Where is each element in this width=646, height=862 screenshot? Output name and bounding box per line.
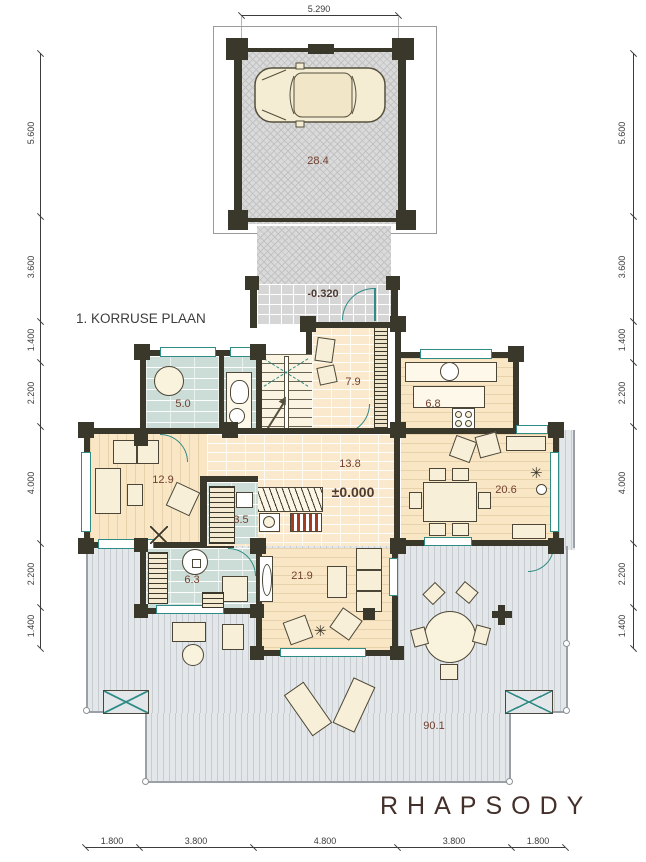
dim-label-bottom: 4.800 xyxy=(295,836,355,846)
sideboard xyxy=(506,436,546,451)
log-post xyxy=(392,38,414,60)
log-post xyxy=(245,276,259,290)
log-post xyxy=(134,344,150,360)
log-post xyxy=(390,538,406,554)
railing-post xyxy=(142,778,149,785)
window xyxy=(230,347,252,357)
log-post xyxy=(134,604,148,618)
terrace-railing xyxy=(573,430,575,548)
window xyxy=(420,349,492,359)
dim-label-left: 3.600 xyxy=(26,248,36,286)
log-post xyxy=(222,422,238,438)
plant-icon: ✳ xyxy=(530,466,543,481)
log-post xyxy=(508,346,524,362)
railing-post xyxy=(563,640,570,647)
washroom-table xyxy=(222,576,248,602)
railing-post xyxy=(506,778,513,785)
floor-x-mark xyxy=(150,526,168,544)
terrace-round-table xyxy=(424,611,476,663)
log-post xyxy=(226,38,248,60)
wall-segment xyxy=(234,44,242,230)
log-post xyxy=(78,538,94,554)
coffee-table xyxy=(327,566,347,598)
stove-burner xyxy=(465,420,472,427)
log-post xyxy=(134,432,148,446)
terrace-railing xyxy=(86,546,88,712)
dining-chair xyxy=(409,492,422,509)
dim-line-right xyxy=(633,53,634,648)
washroom-bench xyxy=(148,552,168,604)
terrace-bench xyxy=(222,624,244,650)
terrace-post-cross xyxy=(498,605,505,625)
window xyxy=(81,452,91,532)
log-post xyxy=(386,276,400,290)
log-post xyxy=(250,604,264,618)
window xyxy=(389,558,398,596)
wall-segment xyxy=(398,44,406,230)
room-area-kitchen: 6.8 xyxy=(418,398,448,410)
dining-table xyxy=(423,482,477,522)
log-post xyxy=(250,538,266,554)
boiler xyxy=(154,366,184,396)
wall-segment xyxy=(513,352,519,432)
terrace-railing xyxy=(145,781,511,783)
dim-label-left: 5.600 xyxy=(26,114,36,152)
railing-post xyxy=(563,707,570,714)
dining-chair xyxy=(429,468,446,481)
room-area-left: 12.9 xyxy=(146,474,180,486)
dim-label-bottom: 3.800 xyxy=(166,836,226,846)
log-post xyxy=(363,608,375,620)
level-mark-porch: -0.320 xyxy=(288,288,358,300)
room-area-dining: 20.6 xyxy=(488,484,524,496)
dim-label-bottom: 1.800 xyxy=(508,836,568,846)
sauna-stove xyxy=(236,492,253,508)
sofa xyxy=(356,548,382,612)
dim-line-top xyxy=(241,15,398,16)
side-table xyxy=(127,484,143,506)
wall-segment xyxy=(234,428,400,434)
window xyxy=(516,425,548,434)
dim-label-right: 1.400 xyxy=(617,607,627,645)
log-post xyxy=(78,422,94,438)
wall-segment xyxy=(200,476,207,546)
dim-label-right: 1.400 xyxy=(617,321,627,359)
wall-segment xyxy=(394,428,400,548)
dim-label-right: 2.200 xyxy=(617,555,627,593)
log-post xyxy=(548,538,564,554)
terrace-railing xyxy=(509,711,511,782)
dining-chair xyxy=(452,523,469,536)
sofa-divider xyxy=(357,590,381,592)
dim-label-left: 2.200 xyxy=(26,555,36,593)
dim-label-bottom: 1.800 xyxy=(82,836,142,846)
kitchen-sink-icon xyxy=(440,362,459,381)
room-area-living: 21.9 xyxy=(284,570,320,582)
log-post xyxy=(390,646,404,660)
wall-segment xyxy=(395,322,401,432)
toilet-icon xyxy=(230,380,249,404)
sofa-divider xyxy=(357,569,381,571)
window xyxy=(280,648,366,657)
room-area-hall: 13.8 xyxy=(330,458,370,470)
dim-label-left: 1.400 xyxy=(26,321,36,359)
dim-label-right: 5.600 xyxy=(617,114,627,152)
log-post xyxy=(390,422,406,438)
garage-gate-beam xyxy=(238,218,406,222)
log-post xyxy=(300,316,316,332)
sideboard xyxy=(512,524,546,539)
window xyxy=(550,452,559,532)
stove-burner xyxy=(465,411,472,418)
dim-label-left: 2.200 xyxy=(26,374,36,412)
page-title: 1. KORRUSE PLAAN xyxy=(76,311,296,326)
dining-chair xyxy=(452,468,469,481)
hall-cabinet xyxy=(314,337,335,363)
hall-cabinet xyxy=(316,364,337,385)
wall-segment xyxy=(200,476,258,482)
log-post xyxy=(396,210,416,230)
terrace-bench xyxy=(172,622,206,642)
step-stool xyxy=(202,592,224,608)
wardrobe xyxy=(257,487,323,512)
shower-drain xyxy=(192,559,201,568)
log-post xyxy=(250,646,264,660)
plant-icon: ✳ xyxy=(314,624,327,639)
log-post xyxy=(134,538,148,552)
fireplace-lens xyxy=(262,564,272,596)
room-area-garage: 28.4 xyxy=(278,155,358,167)
dim-label-top: 5.290 xyxy=(289,4,349,14)
room-area-washroom: 6.3 xyxy=(178,574,206,586)
terrace-railing xyxy=(145,711,147,782)
log-post xyxy=(250,344,266,360)
room-area-stair-hall: 7.9 xyxy=(338,376,368,388)
floor-plan: 5.290 5.600 3.600 1.400 2.200 4.000 2.20… xyxy=(0,0,646,862)
dim-label-left: 4.000 xyxy=(26,464,36,502)
terrace-railing xyxy=(566,546,568,712)
armchair xyxy=(95,468,121,514)
dim-label-right: 2.200 xyxy=(617,374,627,412)
stove-burner xyxy=(455,420,462,427)
log-post xyxy=(390,316,406,332)
stove-burner xyxy=(455,411,462,418)
door-leaf xyxy=(374,288,376,321)
car-icon xyxy=(252,62,388,128)
driveway xyxy=(257,226,391,284)
dim-label-bottom: 3.800 xyxy=(424,836,484,846)
dim-label-right: 4.000 xyxy=(617,464,627,502)
room-area-terrace: 90.1 xyxy=(404,720,464,732)
dim-line-left xyxy=(40,53,41,648)
terrace-stool xyxy=(182,644,204,666)
log-post xyxy=(228,210,248,230)
log-post xyxy=(548,422,564,438)
window xyxy=(424,537,472,546)
window xyxy=(160,347,216,357)
room-area-bathroom: 5.0 xyxy=(168,398,198,410)
dim-label-left: 1.400 xyxy=(26,607,36,645)
washing-machine-drum xyxy=(263,516,275,528)
terrace-chair xyxy=(440,664,458,680)
level-mark-ground: ±0.000 xyxy=(318,484,388,500)
log-post xyxy=(308,44,334,54)
plant-pot xyxy=(536,484,547,495)
dim-line-bottom xyxy=(85,847,565,848)
dim-label-right: 3.600 xyxy=(617,248,627,286)
dining-chair xyxy=(429,523,446,536)
project-title: RHAPSODY xyxy=(380,792,590,821)
room-area-sauna: 3.5 xyxy=(228,514,254,526)
railing-brace xyxy=(505,690,553,714)
railing-brace xyxy=(103,690,149,714)
radiator xyxy=(290,513,322,532)
railing-post xyxy=(83,707,90,714)
